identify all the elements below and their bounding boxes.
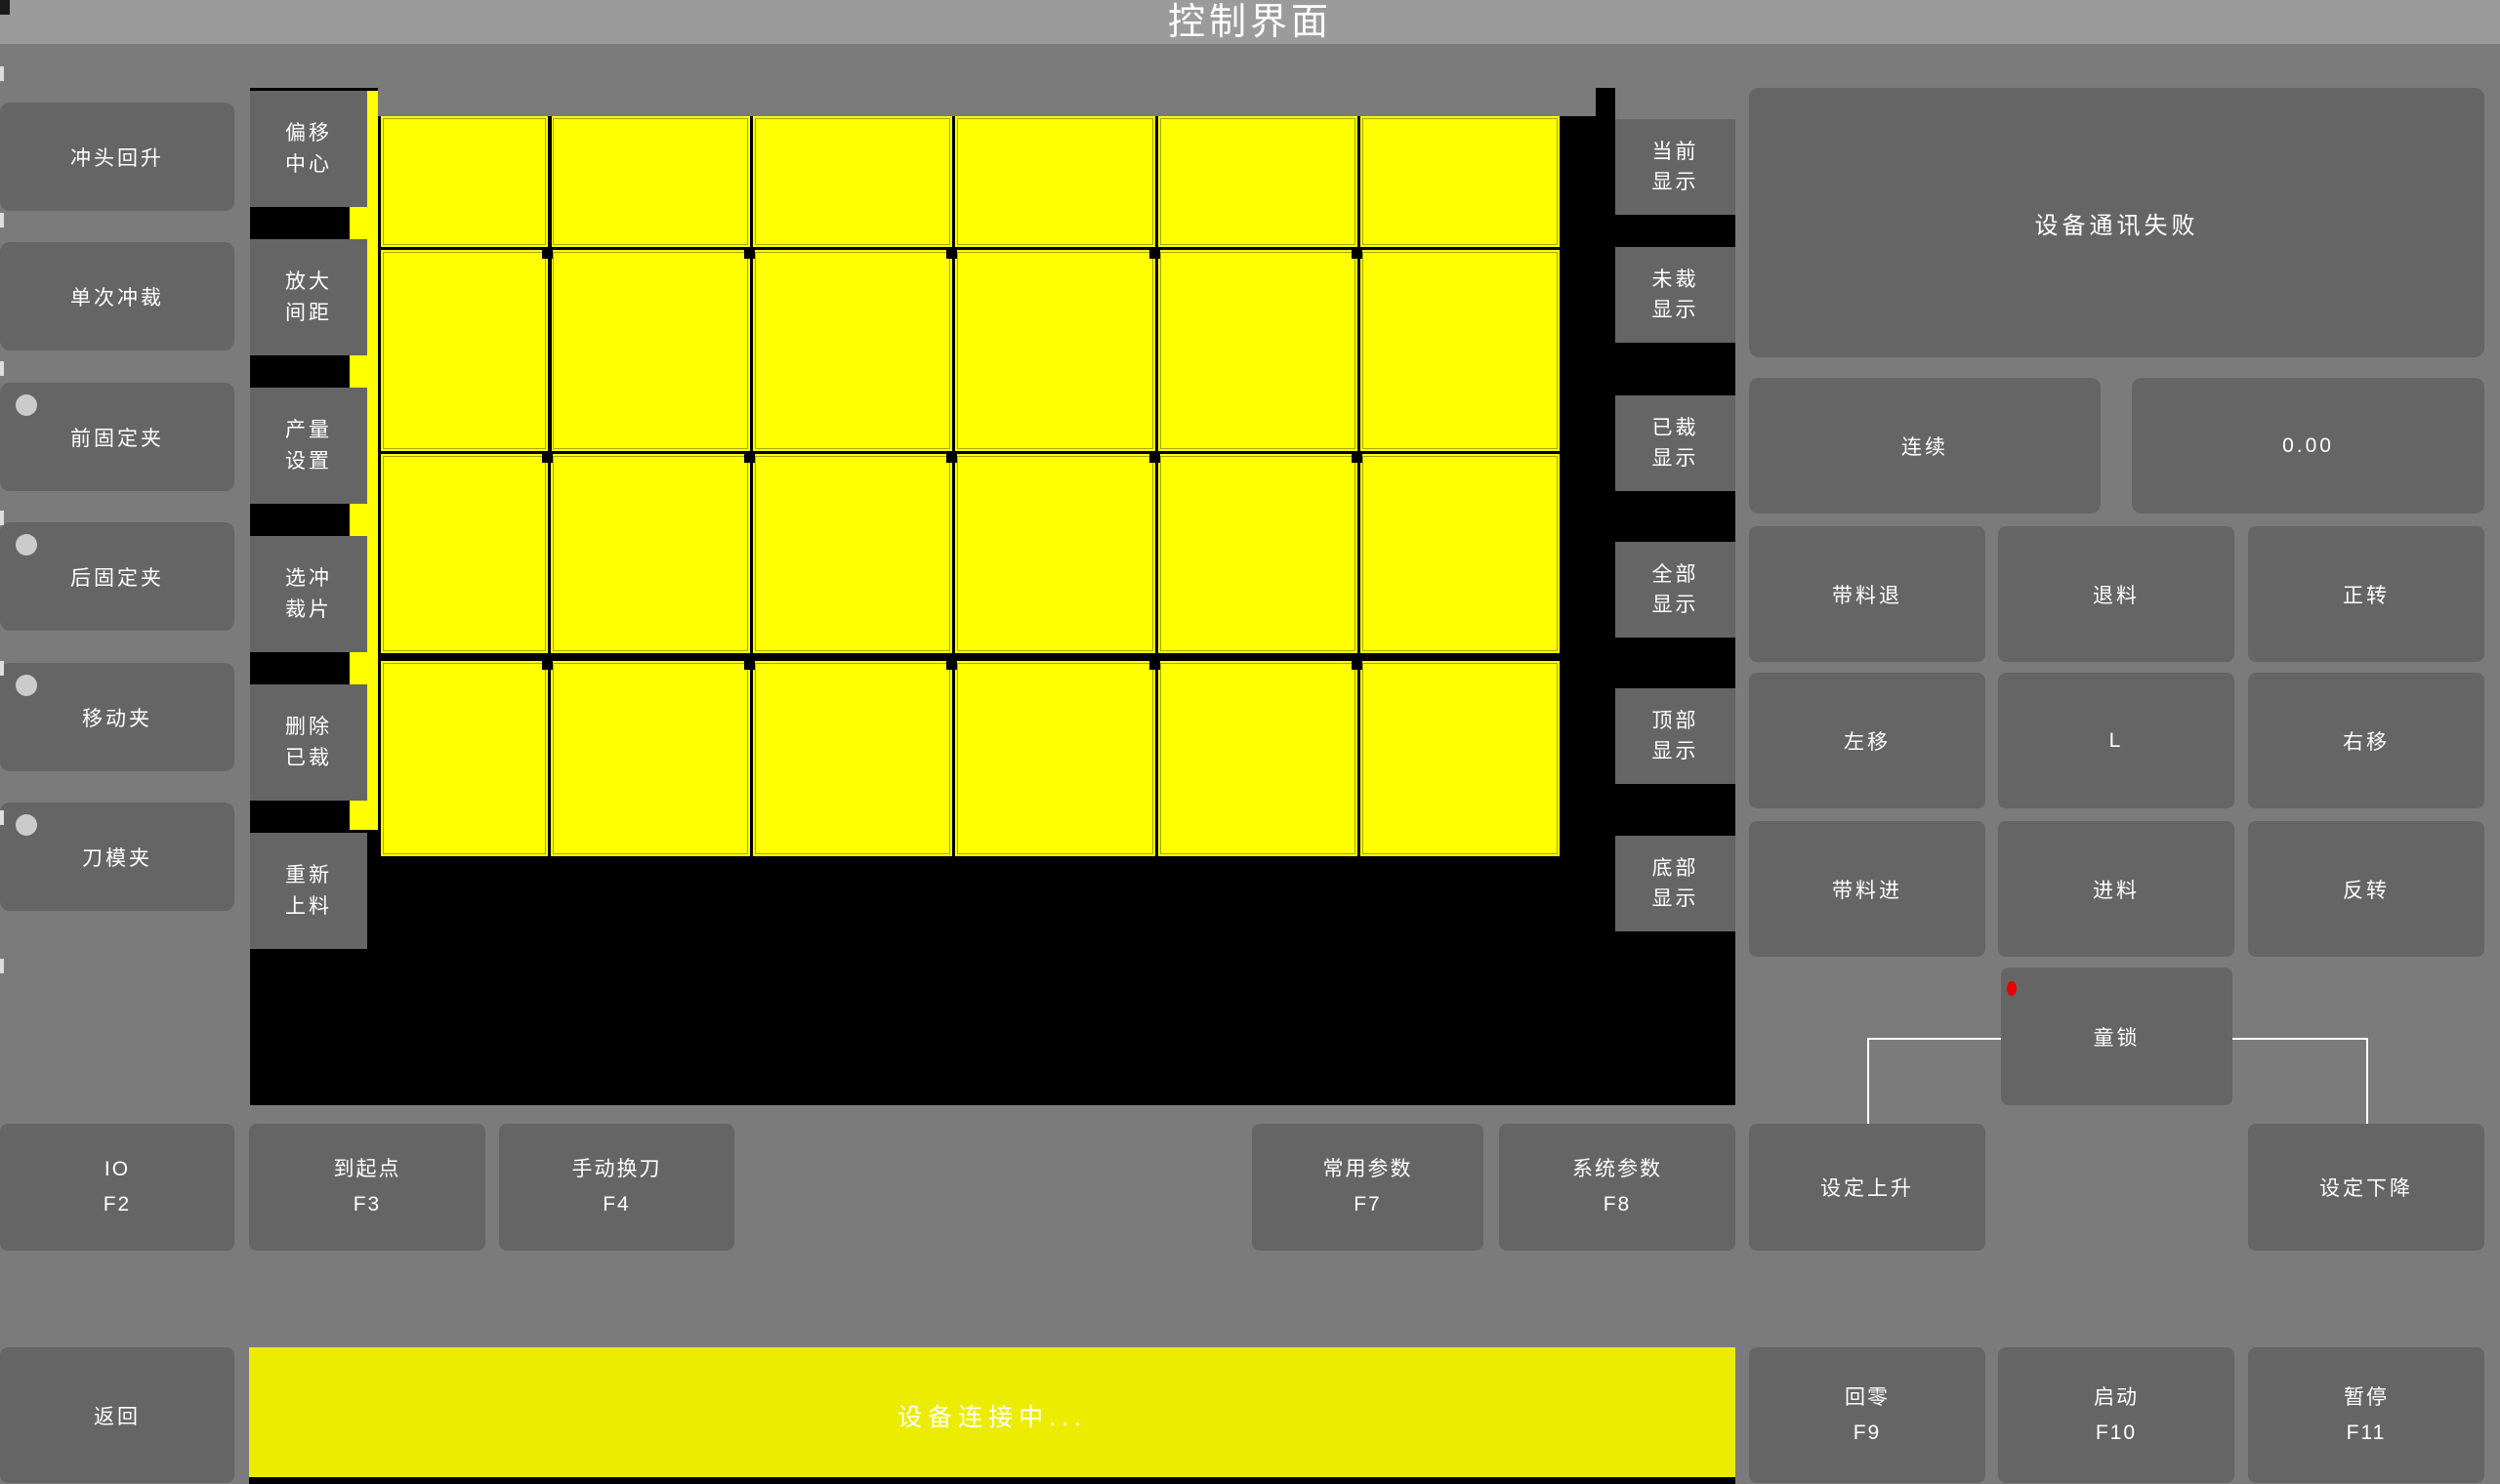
set-rise-button[interactable]: 设定上升	[1749, 1124, 1985, 1251]
all-display-label: 全部显示	[1647, 559, 1704, 621]
delete-cut-button[interactable]: 删除已裁	[250, 684, 367, 801]
sheet-piece[interactable]	[753, 661, 952, 856]
move-left-button[interactable]: 左移	[1749, 673, 1985, 808]
bracket-right-line	[2366, 1038, 2368, 1124]
single-punch-button[interactable]: 单次冲裁	[0, 242, 234, 350]
child-lock-label: 童锁	[2094, 1022, 2141, 1051]
sheet-piece[interactable]	[551, 661, 750, 856]
io-button[interactable]: IOF2	[0, 1124, 234, 1251]
manual-tool-change-label: 手动换刀	[572, 1152, 662, 1187]
sheet-piece[interactable]	[381, 454, 548, 653]
value-display: 0.00	[2132, 378, 2484, 514]
edge-tick-icon	[0, 361, 4, 376]
sheet-piece[interactable]	[381, 250, 548, 451]
reverse-rotate-label: 反转	[2343, 875, 2390, 904]
system-params-key: F8	[1572, 1187, 1662, 1222]
move-clamp-indicator-icon	[16, 675, 37, 696]
die-clamp-label: 刀模夹	[82, 843, 152, 872]
canvas-top-margin	[378, 88, 1596, 116]
reload-material-button[interactable]: 重新上料	[250, 833, 367, 949]
unload-button[interactable]: 退料	[1998, 526, 2234, 662]
move-clamp-button[interactable]: 移动夹	[0, 663, 234, 771]
comm-status-box: 设备通讯失败	[1749, 88, 2484, 357]
delete-cut-label: 删除已裁	[280, 712, 337, 773]
cutting-preview-canvas	[250, 88, 1735, 1105]
forward-rotate-button[interactable]: 正转	[2248, 526, 2484, 662]
current-display-button[interactable]: 当前显示	[1615, 119, 1735, 215]
top-display-button[interactable]: 顶部显示	[1615, 688, 1735, 784]
manual-tool-change-button[interactable]: 手动换刀F4	[499, 1124, 734, 1251]
move-right-button[interactable]: 右移	[2248, 673, 2484, 808]
edge-tick-icon	[0, 661, 4, 676]
front-clamp-label: 前固定夹	[70, 423, 164, 452]
front-clamp-indicator-icon	[16, 394, 37, 416]
sheet-piece[interactable]	[1360, 250, 1560, 451]
rear-clamp-button[interactable]: 后固定夹	[0, 522, 234, 631]
comm-status-text: 设备通讯失败	[2035, 206, 2199, 240]
system-params-button[interactable]: 系统参数F8	[1499, 1124, 1735, 1251]
strip-back-button[interactable]: 带料退	[1749, 526, 1985, 662]
edge-tick-icon	[0, 213, 4, 227]
sheet-piece[interactable]	[753, 116, 952, 247]
select-piece-button[interactable]: 选冲裁片	[250, 536, 367, 652]
io-label: IO	[104, 1152, 132, 1187]
connection-status-bar: 设备连接中...	[249, 1347, 1735, 1483]
sheet-divider-line	[548, 116, 552, 451]
single-punch-label: 单次冲裁	[70, 282, 164, 311]
l-label: L	[2109, 729, 2124, 753]
rear-clamp-label: 后固定夹	[70, 562, 164, 592]
l-button[interactable]: L	[1998, 673, 2234, 808]
edge-tick-icon	[0, 959, 4, 973]
set-rise-label: 设定上升	[1820, 1173, 1914, 1202]
sheet-piece[interactable]	[753, 454, 952, 653]
move-right-label: 右移	[2343, 726, 2390, 756]
enlarge-spacing-label: 放大间距	[280, 267, 337, 328]
sheet-piece[interactable]	[1360, 116, 1560, 247]
punch-up-label: 冲头回升	[70, 143, 164, 172]
system-params-label: 系统参数	[1572, 1152, 1662, 1187]
die-clamp-indicator-icon	[16, 814, 37, 836]
sheet-piece[interactable]	[551, 454, 750, 653]
sheet-piece[interactable]	[381, 661, 548, 856]
continuous-button[interactable]: 连续	[1749, 378, 2101, 514]
sheet-piece[interactable]	[1158, 250, 1357, 451]
set-fall-label: 设定下降	[2319, 1173, 2413, 1202]
value-text: 0.00	[2282, 434, 2334, 458]
home-zero-label: 回零	[1845, 1381, 1890, 1416]
common-params-button[interactable]: 常用参数F7	[1252, 1124, 1483, 1251]
bottom-display-label: 底部显示	[1647, 853, 1704, 915]
rear-clamp-indicator-icon	[16, 534, 37, 556]
cut-display-button[interactable]: 已裁显示	[1615, 395, 1735, 491]
common-params-key: F7	[1323, 1187, 1413, 1222]
move-clamp-label: 移动夹	[82, 703, 152, 732]
current-display-label: 当前显示	[1647, 137, 1704, 198]
continuous-label: 连续	[1901, 432, 1948, 461]
edge-tick-icon	[0, 66, 4, 81]
enlarge-spacing-button[interactable]: 放大间距	[250, 239, 367, 355]
pause-label: 暂停	[2344, 1381, 2389, 1416]
sheet-piece[interactable]	[551, 116, 750, 247]
output-setting-button[interactable]: 产量设置	[250, 388, 367, 504]
cut-display-label: 已裁显示	[1647, 413, 1704, 474]
sheet-piece[interactable]	[753, 250, 952, 451]
back-label: 返回	[94, 1401, 141, 1430]
sheet-piece[interactable]	[1360, 661, 1560, 856]
to-origin-button[interactable]: 到起点F3	[249, 1124, 485, 1251]
unload-label: 退料	[2093, 580, 2140, 609]
top-display-label: 顶部显示	[1647, 706, 1704, 767]
uncut-display-button[interactable]: 未裁显示	[1615, 247, 1735, 343]
strip-forward-button[interactable]: 带料进	[1749, 821, 1985, 957]
home-zero-button[interactable]: 回零F9	[1749, 1347, 1985, 1483]
all-display-button[interactable]: 全部显示	[1615, 542, 1735, 638]
title-bar: 控制界面	[0, 0, 2500, 44]
bottom-display-button[interactable]: 底部显示	[1615, 836, 1735, 931]
sheet-piece[interactable]	[955, 116, 1155, 247]
front-clamp-button[interactable]: 前固定夹	[0, 383, 234, 491]
punch-up-button[interactable]: 冲头回升	[0, 103, 234, 211]
page-title: 控制界面	[0, 0, 2500, 44]
bracket-left-line	[1867, 1038, 1869, 1124]
start-key: F10	[2094, 1416, 2139, 1451]
edge-tick-icon	[0, 810, 4, 825]
sheet-piece[interactable]	[1158, 116, 1357, 247]
sheet-piece[interactable]	[1158, 661, 1357, 856]
pause-button[interactable]: 暂停F11	[2248, 1347, 2484, 1483]
start-label: 启动	[2094, 1381, 2139, 1416]
reverse-rotate-button[interactable]: 反转	[2248, 821, 2484, 957]
select-piece-label: 选冲裁片	[280, 563, 337, 625]
back-button[interactable]: 返回	[0, 1347, 234, 1483]
start-button[interactable]: 启动F10	[1998, 1347, 2234, 1483]
sheet-piece[interactable]	[1158, 454, 1357, 653]
sheet-piece[interactable]	[1360, 454, 1560, 653]
move-left-label: 左移	[1844, 726, 1891, 756]
io-key: F2	[104, 1187, 132, 1222]
offset-center-label: 偏移中心	[280, 118, 337, 180]
sheet-piece[interactable]	[955, 661, 1155, 856]
status-bar-underline	[249, 1477, 1735, 1484]
common-params-label: 常用参数	[1323, 1152, 1413, 1187]
die-clamp-button[interactable]: 刀模夹	[0, 803, 234, 911]
edge-tick-icon	[0, 511, 4, 525]
canvas-top-margin-right	[1615, 88, 1735, 119]
pause-key: F11	[2344, 1416, 2389, 1451]
control-screen: 控制界面 冲头回升 单次冲裁 前固定夹 后固定夹 移动夹 刀模夹 偏移中心 放大…	[0, 0, 2500, 1484]
uncut-display-label: 未裁显示	[1647, 265, 1704, 326]
manual-tool-change-key: F4	[572, 1187, 662, 1222]
reload-material-label: 重新上料	[280, 860, 337, 922]
to-origin-key: F3	[334, 1187, 401, 1222]
sheet-piece[interactable]	[551, 250, 750, 451]
output-setting-label: 产量设置	[280, 415, 337, 476]
alert-dot-icon	[2007, 981, 2017, 996]
feed-label: 进料	[2093, 875, 2140, 904]
forward-rotate-label: 正转	[2343, 580, 2390, 609]
strip-back-label: 带料退	[1832, 580, 1902, 609]
child-lock-button[interactable]: 童锁	[2001, 968, 2232, 1105]
to-origin-label: 到起点	[334, 1152, 401, 1187]
set-fall-button[interactable]: 设定下降	[2248, 1124, 2484, 1251]
feed-button[interactable]: 进料	[1998, 821, 2234, 957]
sheet-piece[interactable]	[381, 116, 548, 247]
strip-forward-label: 带料进	[1832, 875, 1902, 904]
offset-center-button[interactable]: 偏移中心	[250, 91, 367, 207]
sheet-piece[interactable]	[955, 454, 1155, 653]
connection-status-text: 设备连接中...	[897, 1398, 1087, 1433]
sheet-piece[interactable]	[955, 250, 1155, 451]
home-zero-key: F9	[1845, 1416, 1890, 1451]
